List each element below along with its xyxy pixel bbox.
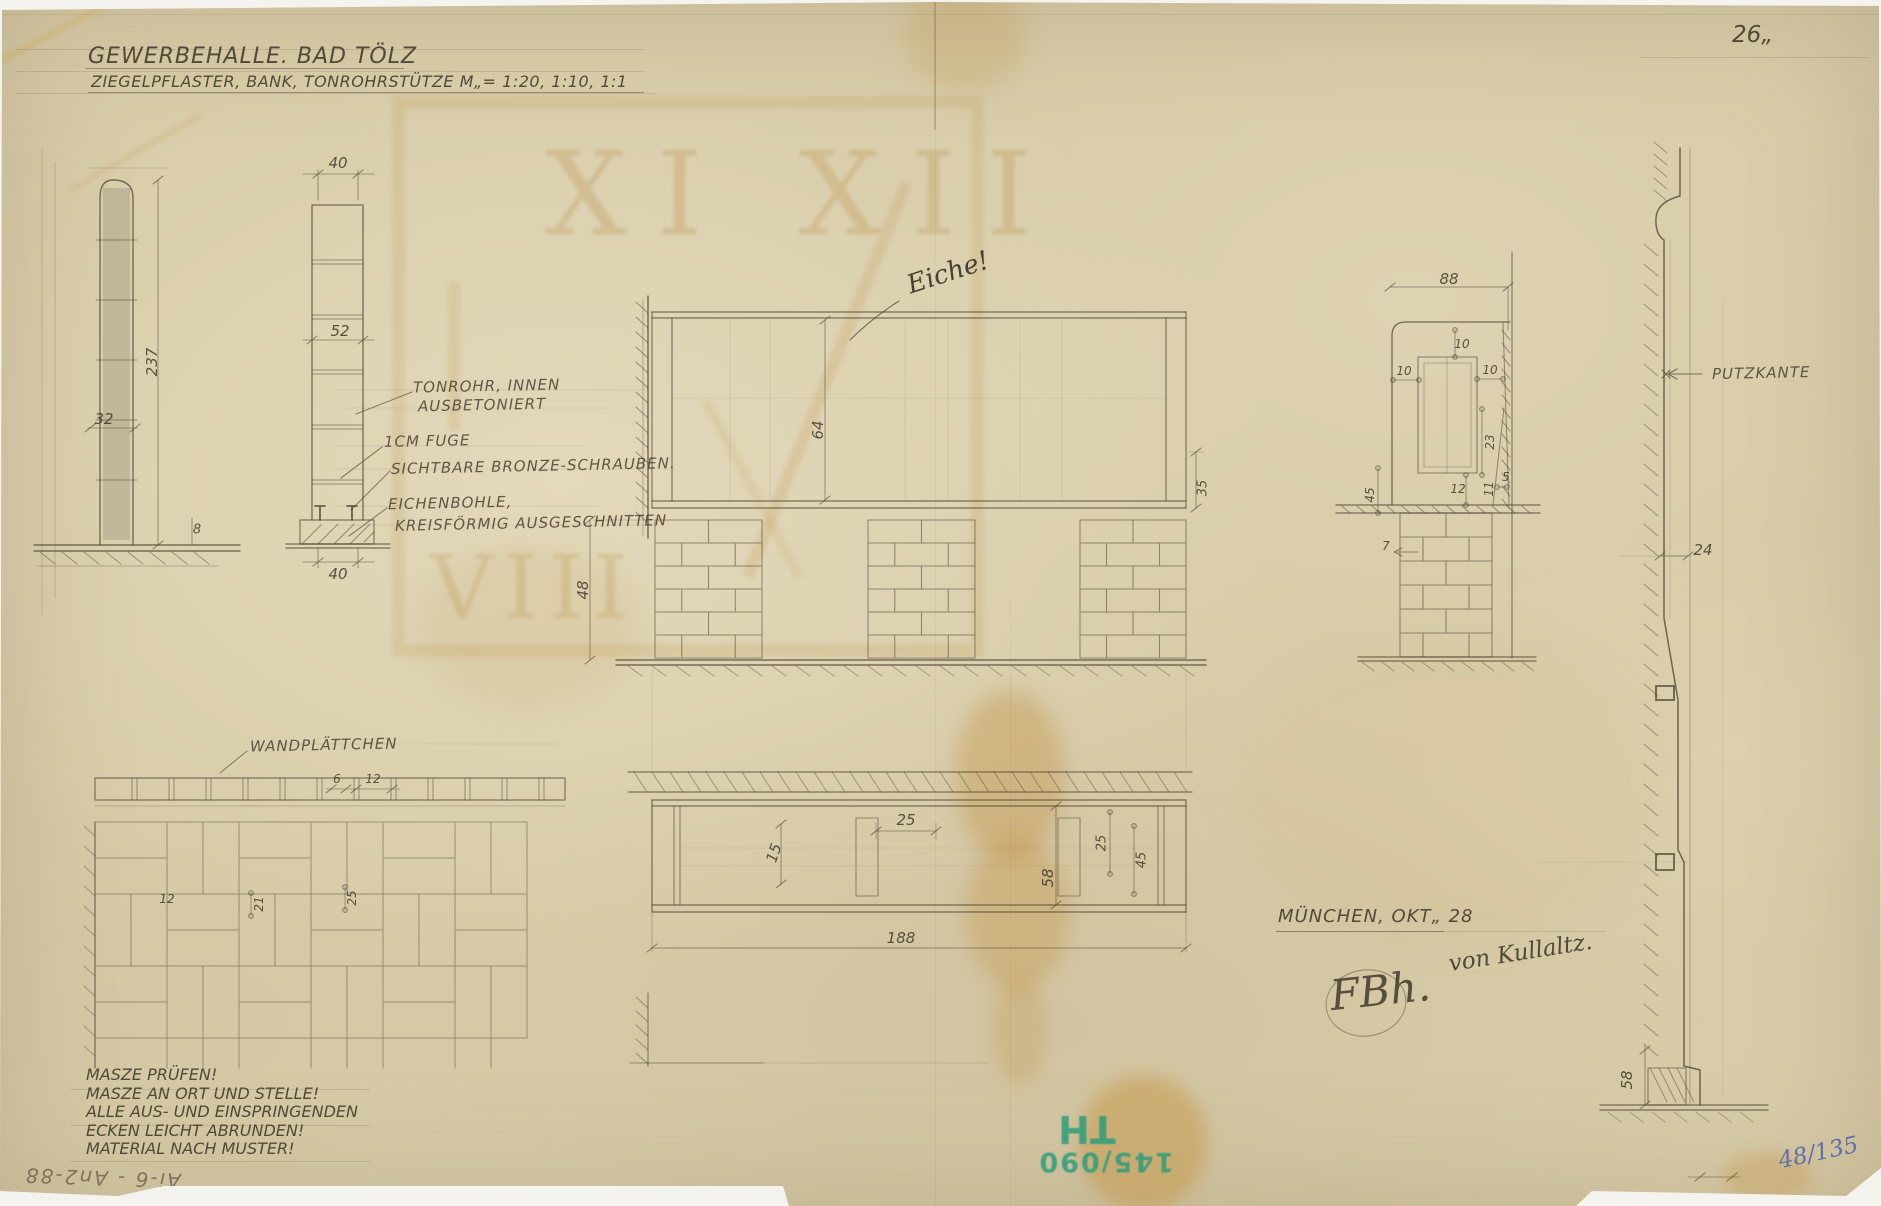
note-line: ALLE AUS- UND EINSPRINGENDEN	[86, 1103, 358, 1122]
note-line: MASZE PRÜFEN!	[86, 1066, 358, 1085]
monogram-signature: FBh.	[1328, 961, 1433, 1020]
pencil-linework	[0, 0, 1881, 1206]
wall-niche-shading	[103, 188, 130, 540]
sheet-number: 26„	[1732, 22, 1773, 48]
note-line: MASZE AN ORT UND STELLE!	[86, 1085, 358, 1104]
subtitle-underline	[88, 92, 644, 93]
stamp-letters: TH	[1042, 1112, 1174, 1146]
sheet-title: GEWERBEHALLE. BAD TÖLZ	[88, 44, 417, 69]
city-date: MÜNCHEN, OKT„ 28	[1278, 906, 1473, 927]
guide-line	[1640, 57, 1870, 58]
sheet-subtitle: ZIEGELPFLASTER, BANK, TONROHRSTÜTZE M„= …	[91, 72, 628, 91]
notes-block: MASZE PRÜFEN! MASZE AN ORT UND STELLE! A…	[86, 1066, 358, 1159]
guide-line	[15, 93, 655, 94]
aged-paper: XI XII VIII	[0, 0, 1881, 1206]
drawing-sheet: XI XII VIII	[0, 0, 1881, 1206]
guide-line	[1276, 931, 1606, 932]
note-line: ECKEN LEICHT ABRUNDEN!	[86, 1122, 358, 1141]
guide-line	[70, 1161, 370, 1162]
archive-stamp: 145/090 TH	[1042, 1112, 1174, 1177]
note-line: MATERIAL NACH MUSTER!	[86, 1140, 358, 1159]
